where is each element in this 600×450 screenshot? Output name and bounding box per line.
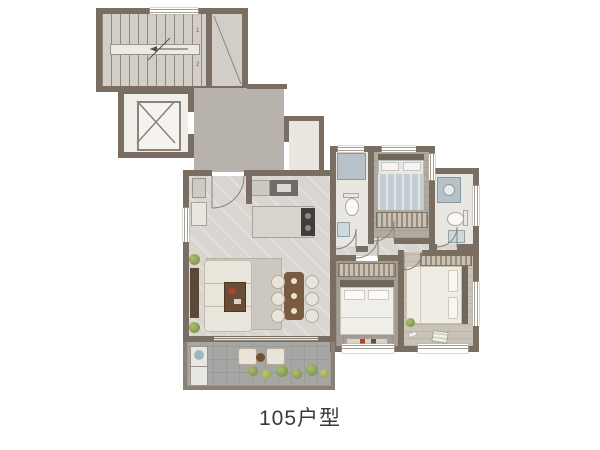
- floorplan-canvas: 1 2: [0, 0, 600, 450]
- entry-partition: [246, 176, 252, 204]
- pillow: [368, 290, 389, 300]
- floor-cushion: [431, 330, 449, 344]
- bath2-top-wall: [429, 168, 479, 174]
- master-headboard: [462, 266, 468, 324]
- bedroom1-wardrobe: [376, 212, 428, 228]
- dining-chair: [305, 309, 319, 323]
- outer-wall-left-a: [183, 170, 189, 208]
- toilet-tank: [463, 210, 468, 226]
- shower: [337, 153, 366, 180]
- balcony-side-table: [256, 353, 265, 362]
- bath2-sink: [448, 230, 465, 243]
- tray-item: [234, 299, 241, 304]
- plate: [291, 293, 297, 299]
- stair-vestibule: [206, 8, 248, 92]
- foyer-cabinet: [191, 202, 207, 226]
- bath1-left-wall: [330, 146, 336, 255]
- living-window: [183, 208, 189, 242]
- utility-right-wall: [319, 116, 324, 172]
- utility-closet-floor: [289, 121, 319, 172]
- bedroom2-bay-window: [342, 344, 394, 353]
- corridor-top-wall: [247, 84, 287, 89]
- outer-wall-left-b: [183, 242, 189, 342]
- burner-icon: [305, 225, 311, 231]
- bedroom1-bottom-wall-a: [368, 238, 374, 244]
- plant-icon: [276, 365, 288, 377]
- balcony-sink-icon: [194, 350, 204, 360]
- stair-floor-mark-1: 1: [196, 28, 199, 34]
- dining-table: [284, 272, 304, 320]
- bedroom2-bed: [340, 287, 394, 335]
- plant-icon: [320, 369, 329, 378]
- dining-chair: [271, 292, 285, 306]
- bath1-bottom-wall: [356, 246, 368, 252]
- duvet-fold: [340, 317, 394, 318]
- toilet-icon: [345, 198, 359, 216]
- washing-machine: [437, 177, 461, 203]
- master-bay-window: [418, 344, 468, 353]
- bedroom2-bed-headboard: [340, 280, 394, 287]
- dining-chair: [271, 275, 285, 289]
- duvet-fold: [420, 266, 421, 324]
- balcony-chair: [238, 348, 257, 365]
- foyer-shoe-cabinet: [192, 178, 206, 198]
- duvet: [378, 174, 424, 210]
- stair-floor-mark-2: 2: [196, 62, 199, 68]
- bath2-window: [473, 186, 479, 226]
- bath1-window: [338, 146, 364, 152]
- plant-icon: [189, 254, 200, 265]
- washer-drum-icon: [443, 184, 455, 196]
- plate: [291, 308, 297, 314]
- plant-icon: [306, 364, 318, 376]
- bedroom2-top-wall-b: [378, 255, 398, 261]
- outer-wall-right-b: [473, 226, 479, 282]
- balcony-bottom-wall: [183, 386, 335, 390]
- stair-landing: [110, 44, 200, 55]
- plant-icon: [406, 318, 415, 327]
- elevator-car: [137, 101, 181, 151]
- bath1-bedroom1-wall: [368, 152, 374, 238]
- dining-chair: [305, 275, 319, 289]
- toilet-icon: [447, 212, 464, 226]
- plan-caption: 105户型: [0, 402, 600, 432]
- balcony-right-wall: [331, 342, 335, 390]
- plant-icon: [262, 370, 271, 379]
- plant-icon: [248, 366, 258, 376]
- master-bed: [406, 266, 462, 324]
- balcony-utility-cabinet: [190, 346, 208, 386]
- outer-wall-top-mid: [244, 170, 336, 176]
- outer-wall-right-a: [473, 168, 479, 186]
- bedroom2-wardrobe: [338, 263, 396, 277]
- master-side-window: [473, 282, 479, 326]
- stove: [301, 208, 315, 236]
- balcony-left-wall: [183, 342, 187, 390]
- kitchen-counter-sink: [270, 180, 298, 196]
- bedroom1-bed: [378, 160, 424, 210]
- plant-icon: [292, 369, 302, 379]
- balcony-sliding-door: [214, 337, 318, 341]
- coffee-table: [224, 282, 246, 312]
- kitchen-sink-basin: [277, 184, 291, 192]
- utility-top-wall: [284, 116, 324, 121]
- tv-console: [190, 268, 199, 318]
- bath1-sink: [337, 222, 350, 237]
- dining-chair: [305, 292, 319, 306]
- master-top-wall-b: [422, 250, 473, 256]
- tray-item: [229, 288, 235, 294]
- bedroom1-window: [382, 146, 416, 152]
- bedroom2-master-wall: [398, 250, 404, 352]
- elevator-shaft: [118, 88, 194, 158]
- balcony-chair: [266, 348, 285, 365]
- bedroom1-side-window: [429, 154, 435, 180]
- utility-left-wall: [284, 116, 289, 142]
- plant-icon: [189, 322, 200, 333]
- plate: [291, 278, 297, 284]
- pillow: [448, 270, 458, 292]
- stairwell-window: [150, 8, 198, 14]
- pillow: [403, 162, 421, 171]
- pillow: [381, 162, 399, 171]
- dining-chair: [271, 309, 285, 323]
- kitchen-cabinet: [250, 180, 270, 196]
- cabinet-divider: [190, 366, 208, 367]
- pillow: [344, 290, 365, 300]
- pillow: [448, 297, 458, 319]
- burner-icon: [305, 213, 311, 219]
- corridor-floor: [194, 88, 284, 172]
- stairwell-room: [96, 8, 212, 92]
